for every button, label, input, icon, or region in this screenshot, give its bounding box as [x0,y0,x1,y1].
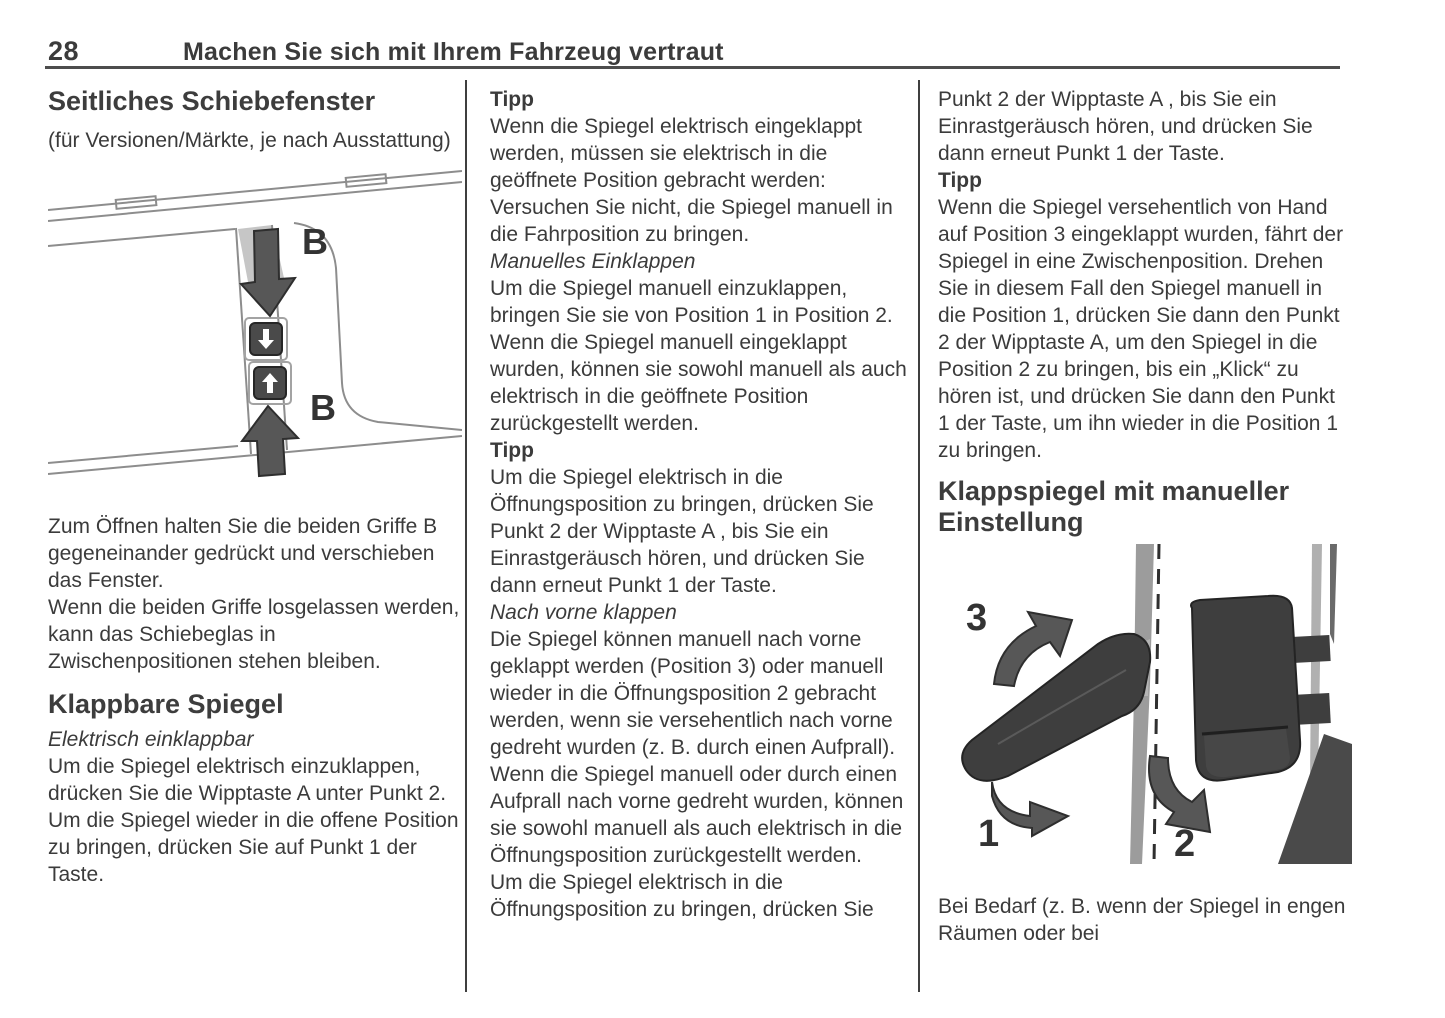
tip-text: Wenn die Spiegel elektrisch eingeklappt … [490,113,910,248]
tip-label: Tipp [938,167,1352,194]
column-2: Tipp Wenn die Spiegel elektrisch eingekl… [490,86,910,923]
position-label-1: 1 [978,813,999,855]
figure-manual-mirror: 3 1 2 [938,544,1352,871]
subheading-fold-forward: Nach vorne klappen [490,599,910,626]
tip-label: Tipp [490,437,910,464]
window-corner [1330,544,1337,644]
paragraph: Punkt 2 der Wipptaste A , bis Sie ein Ei… [938,86,1352,167]
paragraph: Um die Spiegel elektrisch einzuklappen, … [48,753,462,888]
handle-label-top: B [302,221,328,262]
column-divider-1 [465,80,467,992]
position-label-3: 3 [966,597,987,639]
tip-text: Wenn die Spiegel versehentlich von Hand … [938,194,1352,464]
paragraph: Bei Bedarf (z. B. wenn der Spiegel in en… [938,893,1352,947]
tip-text: Um die Spiegel elektrisch in die Öffnung… [490,464,910,599]
paragraph: Wenn die Spiegel manuell oder durch eine… [490,761,910,869]
mirror-housing-unfolded [1191,596,1331,781]
paragraph: Die Spiegel können manuell nach vorne ge… [490,626,910,761]
manual-page: 28 Machen Sie sich mit Ihrem Fahrzeug ve… [0,0,1445,1018]
subheading-electric-folding: Elektrisch einklappbar [48,726,462,753]
fold-axis-dashed-line [1154,544,1159,864]
section-heading-folding-mirrors: Klappbare Spiegel [48,689,462,720]
position-label-2: 2 [1174,823,1195,864]
section-heading-manual-mirror: Klappspiegel mit manueller Einstellung [938,476,1352,538]
arrow-position-1 [992,782,1068,836]
arrow-up [242,406,298,476]
sliding-window-illustration: B B [48,158,462,480]
latch-button-lower [254,367,286,399]
section-heading-sliding-window: Seitliches Schiebefenster [48,86,462,117]
page-title: Machen Sie sich mit Ihrem Fahrzeug vertr… [183,38,724,67]
paragraph: Zum Öffnen halten Sie die beiden Griffe … [48,513,462,594]
mirror-fold-illustration: 3 1 2 [938,544,1352,864]
header-rule [45,66,1340,69]
page-number: 28 [48,36,79,67]
variant-note: (für Versionen/Märkte, je nach Ausstattu… [48,127,462,154]
latch-button-upper [250,323,282,355]
tip-label: Tipp [490,86,910,113]
column-3: Punkt 2 der Wipptaste A , bis Sie ein Ei… [938,86,1352,947]
column-1: Seitliches Schiebefenster (für Versionen… [48,86,462,888]
mirror-housing-folded [962,634,1150,781]
paragraph: Um die Spiegel elektrisch in die Öffnung… [490,869,910,923]
paragraph: Wenn die beiden Griffe losgelassen werde… [48,594,462,675]
paragraph: Um die Spiegel manuell einzuklappen, bri… [490,275,910,437]
figure-sliding-window: B B [48,158,462,487]
subheading-manual-folding: Manuelles Einklappen [490,248,910,275]
column-divider-2 [918,80,920,992]
handle-label-bottom: B [310,387,336,428]
